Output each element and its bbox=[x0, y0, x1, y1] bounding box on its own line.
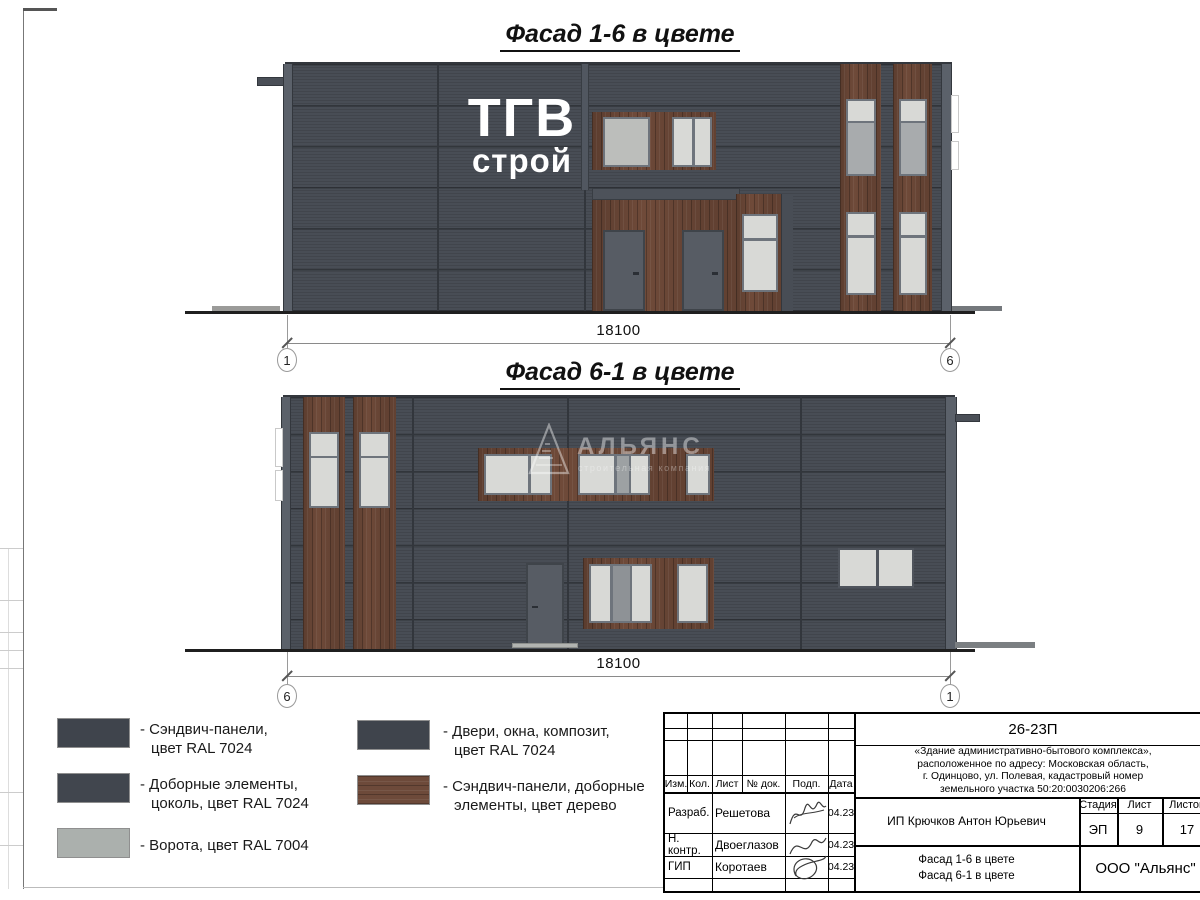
tb-name-norm-control: Двоеглазов bbox=[712, 833, 785, 856]
window-transom bbox=[900, 235, 926, 238]
facade-6-1-title: Фасад 6-1 в цвете bbox=[285, 358, 955, 387]
tb-doc-number: 26-23П bbox=[854, 714, 1200, 745]
facade-6-1-gutter bbox=[955, 414, 980, 422]
facade-1-6-gutter bbox=[257, 77, 285, 86]
legend-label-gates: - Ворота, цвет RAL 7004 bbox=[140, 836, 309, 855]
watermark-subtitle: строительная компания bbox=[578, 463, 711, 473]
window bbox=[899, 212, 927, 295]
panel-joint bbox=[412, 397, 414, 651]
watermark-name: АЛЬЯНС bbox=[577, 433, 704, 461]
door-threshold bbox=[512, 643, 578, 648]
dimension-label: 18100 bbox=[285, 322, 952, 339]
tb-date-norm-control: 04.23 bbox=[828, 833, 854, 856]
door bbox=[603, 230, 645, 311]
tb-company: ООО "Альянс" bbox=[1079, 845, 1200, 891]
ground-line bbox=[185, 311, 975, 314]
tb-subject: Фасад 1-6 в цвете Фасад 6-1 в цвете bbox=[854, 845, 1079, 891]
corner-trim-left bbox=[283, 64, 293, 313]
logo-line-2: строй bbox=[432, 144, 612, 178]
dimension-label: 18100 bbox=[285, 655, 952, 672]
legend-label-doors-windows: - Двери, окна, композит,цвет RAL 7024 bbox=[443, 722, 610, 760]
margin-cell-line bbox=[0, 668, 23, 669]
tb-project-description: «Здание административно-бытового комплек… bbox=[854, 745, 1200, 797]
dimension-line bbox=[287, 676, 950, 677]
margin-cell-line bbox=[0, 632, 23, 633]
signature bbox=[786, 832, 828, 884]
floor-divider-band bbox=[592, 188, 740, 200]
dimension-line bbox=[287, 343, 950, 344]
legend-swatch-flashings bbox=[57, 773, 130, 803]
gray-post bbox=[781, 194, 793, 313]
drawing-sheet: Фасад 1-6 в цвете ТГВ строй 18100 1 bbox=[0, 0, 1200, 900]
downpipe-outline bbox=[951, 141, 959, 170]
window bbox=[677, 564, 708, 623]
tb-sheet-header: Лист bbox=[1117, 797, 1162, 813]
window bbox=[838, 548, 914, 588]
ramp bbox=[955, 642, 1035, 648]
tb-stage-header: Стадия bbox=[1079, 797, 1117, 813]
door bbox=[682, 230, 724, 311]
window bbox=[672, 117, 712, 167]
tb-line bbox=[665, 740, 854, 741]
tb-name-developer: Решетова bbox=[712, 792, 785, 833]
corner-trim-right bbox=[945, 397, 957, 651]
margin-cell-line bbox=[0, 792, 23, 793]
tb-date-chief-engineer: 04.23 bbox=[828, 856, 854, 878]
tb-header-list: Лист bbox=[712, 775, 742, 792]
window bbox=[846, 99, 876, 176]
door-handle bbox=[712, 272, 718, 275]
tb-role-norm-control: Н. контр. bbox=[665, 833, 712, 856]
tb-line bbox=[665, 728, 854, 729]
window-mullion bbox=[610, 565, 613, 622]
downpipe-outline bbox=[951, 95, 959, 133]
window-transom bbox=[310, 456, 338, 459]
window bbox=[846, 212, 876, 295]
title-block: Изм. Кол. Лист № док. Подп. Дата Разраб.… bbox=[663, 712, 1200, 893]
window-pane bbox=[901, 121, 925, 174]
window bbox=[603, 117, 650, 167]
tb-role-developer: Разраб. bbox=[665, 792, 712, 833]
window-pane bbox=[848, 121, 874, 174]
margin-cell-line bbox=[0, 600, 23, 601]
building-logo: ТГВ строй bbox=[432, 92, 612, 178]
legend-swatch-sandwich-panels bbox=[57, 718, 130, 748]
legend-swatch-gates bbox=[57, 828, 130, 858]
door-handle bbox=[633, 272, 639, 275]
legend-label-wood-panels: - Сэндвич-панели, доборныеэлементы, цвет… bbox=[443, 777, 645, 815]
axis-marker: 1 bbox=[940, 684, 960, 708]
signature bbox=[786, 794, 828, 832]
facade-1-6-title: Фасад 1-6 в цвете bbox=[285, 20, 955, 49]
legend-label-sandwich-panels: - Сэндвич-панели,цвет RAL 7024 bbox=[140, 720, 268, 758]
window-mullion bbox=[876, 549, 879, 587]
frame-top-mark bbox=[23, 8, 57, 11]
tb-role-chief-engineer: ГИП bbox=[665, 856, 712, 878]
tb-stage-value: ЭП bbox=[1079, 813, 1117, 845]
watermark: АЛЬЯНС строительная компания bbox=[500, 415, 730, 481]
window-mullion bbox=[630, 565, 633, 622]
door bbox=[526, 563, 564, 645]
tb-header-izm: Изм. bbox=[665, 775, 687, 792]
tb-header-kol: Кол. bbox=[687, 775, 712, 792]
tb-sheets-value: 17 bbox=[1162, 813, 1200, 845]
ground-line bbox=[185, 649, 975, 652]
window-transom bbox=[847, 121, 875, 124]
facade-1-6-drawing: ТГВ строй bbox=[285, 62, 952, 311]
window bbox=[589, 564, 652, 623]
tb-header-data: Дата bbox=[828, 775, 854, 792]
panel-joint bbox=[800, 397, 802, 651]
downpipe-outline bbox=[275, 470, 283, 501]
window-transom bbox=[360, 456, 389, 459]
tb-date-developer: 04.23 bbox=[828, 792, 854, 833]
logo-line-1: ТГВ bbox=[432, 92, 612, 144]
tb-sheets-header: Листов bbox=[1162, 797, 1200, 813]
margin-cell-line bbox=[0, 845, 23, 846]
window-transom bbox=[743, 238, 777, 241]
tb-sheet-value: 9 bbox=[1117, 813, 1162, 845]
watermark-triangle-logo bbox=[528, 423, 570, 475]
legend-label-flashings: - Доборные элементы,цоколь, цвет RAL 702… bbox=[140, 775, 309, 813]
window-pane bbox=[605, 119, 648, 165]
window-transom bbox=[900, 121, 926, 124]
tb-name-chief-engineer: Коротаев bbox=[712, 856, 785, 878]
tb-header-podp: Подп. bbox=[785, 775, 828, 792]
window bbox=[359, 432, 390, 508]
margin-cell-line bbox=[0, 548, 23, 549]
legend-swatch-doors-windows bbox=[357, 720, 430, 750]
window-mullion bbox=[692, 118, 695, 166]
tb-client: ИП Крючков Антон Юрьевич bbox=[854, 797, 1079, 845]
margin-cell-line bbox=[0, 650, 23, 651]
tb-header-ndok: № док. bbox=[742, 775, 785, 792]
legend-swatch-wood-panels bbox=[357, 775, 430, 805]
axis-marker: 6 bbox=[277, 684, 297, 708]
frame-bottom-border bbox=[23, 887, 663, 888]
window-transom bbox=[847, 235, 875, 238]
frame-left-border bbox=[23, 8, 24, 889]
window bbox=[899, 99, 927, 176]
window bbox=[309, 432, 339, 508]
window bbox=[742, 214, 778, 292]
window-pane bbox=[610, 566, 629, 621]
door-handle bbox=[532, 606, 538, 609]
downpipe-outline bbox=[275, 428, 283, 467]
